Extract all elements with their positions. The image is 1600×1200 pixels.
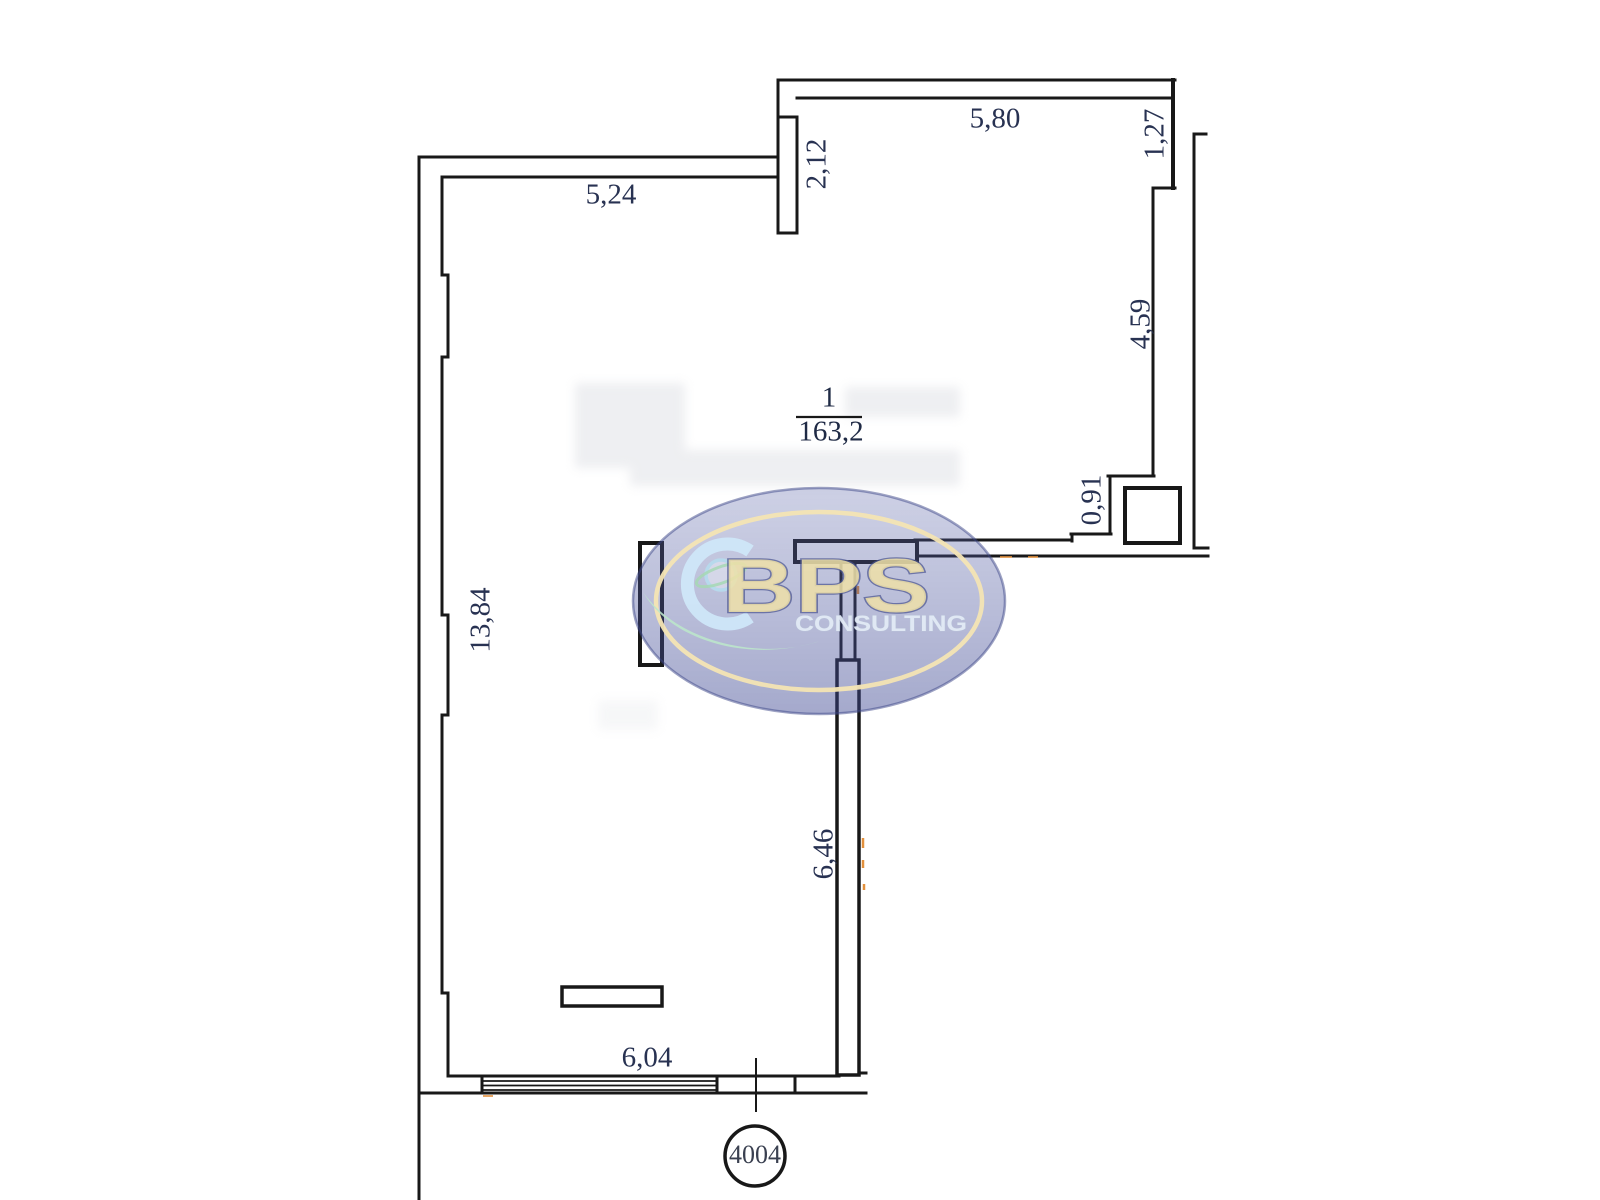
dimension-bottom-width: 6,04 <box>622 1044 673 1073</box>
dimension-interior-wall-height: 6,46 <box>810 829 839 880</box>
floorplan-canvas: BPS CONSULTING 5,24 5,80 2,12 1,27 4,59 … <box>0 0 1600 1200</box>
dimension-top-left-width: 5,24 <box>586 181 637 210</box>
dimension-top-width: 5,80 <box>970 105 1021 134</box>
unit-number: 4004 <box>729 1142 781 1168</box>
room-number: 1 <box>822 384 837 413</box>
dimension-right-upper-height: 1,27 <box>1141 109 1170 160</box>
watermark-emblem: BPS CONSULTING <box>633 488 1005 714</box>
dimension-entry-pier-height: 2,12 <box>803 139 832 190</box>
dimension-left-height: 13,84 <box>467 587 496 652</box>
dimension-right-step-height: 0,91 <box>1078 475 1107 526</box>
dimension-right-height: 4,59 <box>1127 299 1156 350</box>
room-area: 163,2 <box>798 418 863 447</box>
watermark-subtitle: CONSULTING <box>795 611 967 636</box>
